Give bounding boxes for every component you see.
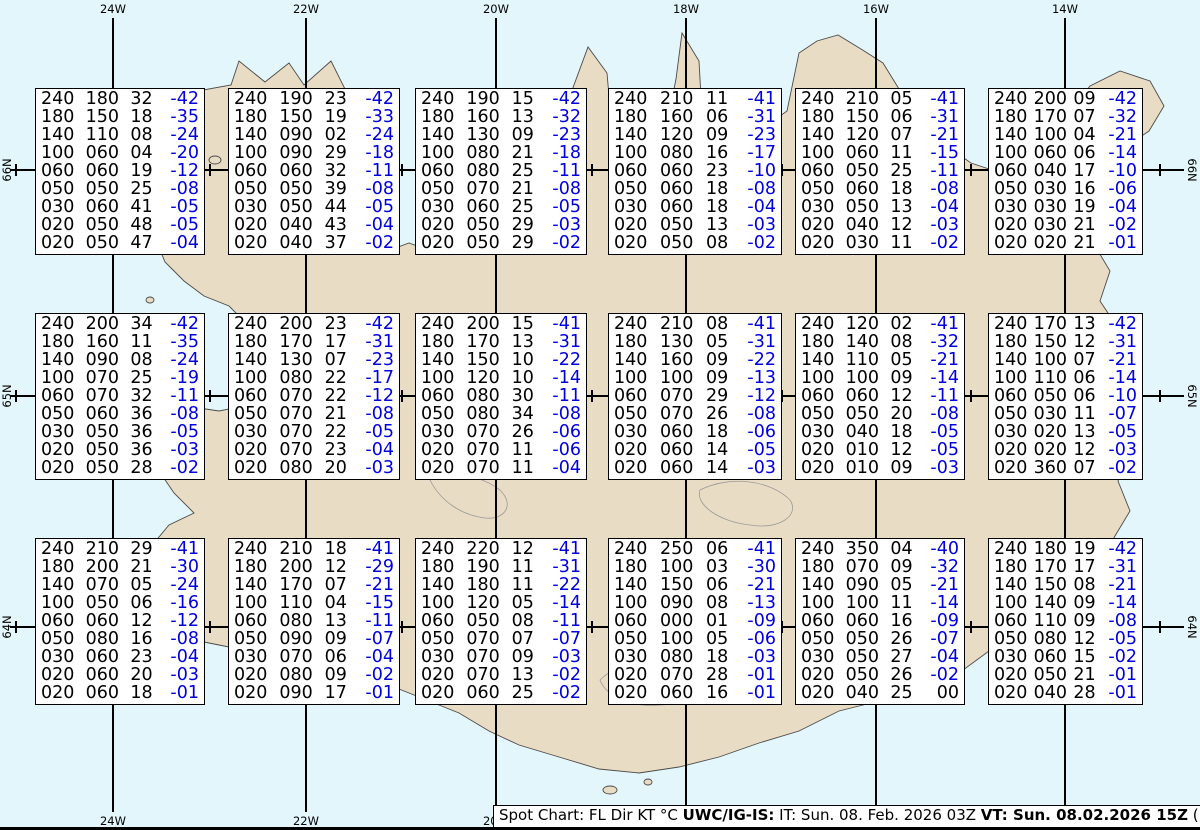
kt-value: 09 bbox=[325, 630, 351, 648]
kt-value: 06 bbox=[325, 648, 351, 666]
fl-value: 020 bbox=[234, 441, 270, 459]
temp-value: -11 bbox=[547, 612, 581, 630]
fl-value: 020 bbox=[994, 459, 1030, 477]
dir-value: 070 bbox=[86, 387, 122, 405]
spot-box-r3c6: 24018019-4218017017-3114015008-211001400… bbox=[988, 538, 1143, 705]
dir-value: 160 bbox=[660, 108, 696, 126]
fl-value: 030 bbox=[994, 198, 1030, 216]
kt-value: 04 bbox=[130, 144, 156, 162]
dir-value: 160 bbox=[660, 351, 696, 369]
kt-value: 07 bbox=[512, 630, 538, 648]
kt-value: 29 bbox=[706, 387, 732, 405]
temp-value: -05 bbox=[547, 198, 581, 216]
temp-value: -31 bbox=[1103, 333, 1137, 351]
fl-value: 240 bbox=[421, 90, 457, 108]
fl-value: 050 bbox=[421, 180, 457, 198]
spot-row: 06007022-12 bbox=[234, 387, 394, 405]
dir-value: 080 bbox=[1034, 630, 1070, 648]
temp-value: -42 bbox=[1103, 90, 1137, 108]
kt-value: 11 bbox=[890, 144, 916, 162]
temp-value: -24 bbox=[165, 576, 199, 594]
dir-value: 080 bbox=[660, 144, 696, 162]
spot-row: 05007007-07 bbox=[421, 630, 581, 648]
fl-value: 240 bbox=[41, 315, 77, 333]
fl-value: 240 bbox=[801, 90, 837, 108]
temp-value: -24 bbox=[165, 126, 199, 144]
kt-value: 16 bbox=[1073, 180, 1099, 198]
temp-value: -18 bbox=[360, 144, 394, 162]
kt-value: 11 bbox=[512, 441, 538, 459]
lon-label-top-24w: 24W bbox=[100, 2, 126, 16]
kt-value: 12 bbox=[1073, 630, 1099, 648]
spot-row: 14012007-21 bbox=[801, 126, 959, 144]
spot-row: 10008021-18 bbox=[421, 144, 581, 162]
fl-value: 100 bbox=[614, 369, 650, 387]
temp-value: -05 bbox=[925, 423, 959, 441]
spot-row: 14012009-23 bbox=[614, 126, 776, 144]
fl-value: 140 bbox=[801, 126, 837, 144]
temp-value: -03 bbox=[1103, 441, 1137, 459]
kt-value: 05 bbox=[890, 576, 916, 594]
kt-value: 08 bbox=[1073, 576, 1099, 594]
spot-row: 10010009-13 bbox=[614, 369, 776, 387]
kt-value: 20 bbox=[890, 405, 916, 423]
kt-value: 09 bbox=[1073, 90, 1099, 108]
dir-value: 030 bbox=[1034, 405, 1070, 423]
temp-value: -08 bbox=[742, 405, 776, 423]
spot-row: 24021011-41 bbox=[614, 90, 776, 108]
temp-value: -14 bbox=[925, 594, 959, 612]
dir-value: 210 bbox=[660, 315, 696, 333]
spot-row: 05008016-08 bbox=[41, 630, 199, 648]
fl-value: 030 bbox=[234, 648, 270, 666]
dir-value: 050 bbox=[86, 459, 122, 477]
spot-row: 06011009-08 bbox=[994, 612, 1137, 630]
dir-value: 200 bbox=[86, 558, 122, 576]
temp-value: -08 bbox=[165, 630, 199, 648]
kt-value: 09 bbox=[325, 666, 351, 684]
fl-value: 100 bbox=[801, 594, 837, 612]
spot-row: 05009009-07 bbox=[234, 630, 394, 648]
temp-value: -06 bbox=[1103, 180, 1137, 198]
kt-value: 13 bbox=[325, 612, 351, 630]
kt-value: 18 bbox=[890, 180, 916, 198]
spot-row: 02008009-02 bbox=[234, 666, 394, 684]
temp-value: -06 bbox=[547, 441, 581, 459]
temp-value: -21 bbox=[925, 126, 959, 144]
dir-value: 080 bbox=[279, 666, 315, 684]
spot-row: 05003016-06 bbox=[994, 180, 1137, 198]
dir-value: 060 bbox=[846, 144, 882, 162]
fl-value: 240 bbox=[41, 540, 77, 558]
fl-value: 020 bbox=[234, 459, 270, 477]
kt-value: 12 bbox=[890, 216, 916, 234]
spot-row: 18007009-32 bbox=[801, 558, 959, 576]
temp-value: -01 bbox=[1103, 234, 1137, 252]
kt-value: 04 bbox=[325, 594, 351, 612]
spot-box-r2c4: 24021008-4118013005-3114016009-221001000… bbox=[608, 313, 782, 480]
dir-value: 150 bbox=[1034, 576, 1070, 594]
dir-value: 030 bbox=[1034, 198, 1070, 216]
kt-value: 12 bbox=[890, 387, 916, 405]
kt-value: 21 bbox=[512, 180, 538, 198]
fl-value: 020 bbox=[801, 234, 837, 252]
dir-value: 090 bbox=[86, 351, 122, 369]
temp-value: -42 bbox=[547, 90, 581, 108]
spot-row: 02007023-04 bbox=[234, 441, 394, 459]
dir-value: 100 bbox=[846, 369, 882, 387]
fl-value: 050 bbox=[614, 630, 650, 648]
fl-value: 140 bbox=[614, 576, 650, 594]
kt-value: 23 bbox=[325, 90, 351, 108]
spot-row: 02001009-03 bbox=[801, 459, 959, 477]
dir-value: 060 bbox=[846, 612, 882, 630]
dir-value: 090 bbox=[279, 126, 315, 144]
temp-value: -05 bbox=[360, 198, 394, 216]
fl-value: 050 bbox=[421, 630, 457, 648]
spot-row: 06006012-11 bbox=[801, 387, 959, 405]
spot-row: 24021029-41 bbox=[41, 540, 199, 558]
spot-row: 10006004-20 bbox=[41, 144, 199, 162]
temp-value: -13 bbox=[742, 369, 776, 387]
fl-value: 240 bbox=[614, 90, 650, 108]
kt-value: 21 bbox=[325, 405, 351, 423]
fl-value: 140 bbox=[994, 126, 1030, 144]
temp-value: -08 bbox=[742, 180, 776, 198]
temp-value: -22 bbox=[547, 576, 581, 594]
temp-value: -32 bbox=[547, 108, 581, 126]
spot-row: 18014008-32 bbox=[801, 333, 959, 351]
temp-value: -42 bbox=[360, 90, 394, 108]
spot-row: 24022012-41 bbox=[421, 540, 581, 558]
dir-value: 360 bbox=[1034, 459, 1070, 477]
lon-label-top-22w: 22W bbox=[293, 2, 319, 16]
temp-value: -12 bbox=[165, 162, 199, 180]
temp-value: -10 bbox=[742, 162, 776, 180]
temp-value: -14 bbox=[547, 369, 581, 387]
temp-value: -17 bbox=[360, 369, 394, 387]
kt-value: 23 bbox=[706, 162, 732, 180]
temp-value: -03 bbox=[742, 459, 776, 477]
fl-value: 060 bbox=[234, 387, 270, 405]
kt-value: 09 bbox=[706, 126, 732, 144]
kt-value: 12 bbox=[890, 441, 916, 459]
dir-value: 120 bbox=[846, 126, 882, 144]
kt-value: 10 bbox=[512, 351, 538, 369]
fl-value: 180 bbox=[41, 333, 77, 351]
footer-title: Spot Chart: FL Dir KT °C bbox=[499, 806, 683, 824]
fl-value: 140 bbox=[421, 351, 457, 369]
dir-value: 080 bbox=[466, 405, 502, 423]
fl-value: 050 bbox=[614, 180, 650, 198]
dir-value: 050 bbox=[846, 630, 882, 648]
kt-value: 03 bbox=[706, 558, 732, 576]
fl-value: 020 bbox=[421, 216, 457, 234]
spot-row: 02006016-01 bbox=[614, 684, 776, 702]
temp-value: -32 bbox=[1103, 108, 1137, 126]
spot-row: 06007029-12 bbox=[614, 387, 776, 405]
spot-row: 06005006-10 bbox=[994, 387, 1137, 405]
spot-row: 06006032-11 bbox=[234, 162, 394, 180]
temp-value: -23 bbox=[360, 351, 394, 369]
grid-cross bbox=[204, 164, 216, 176]
kt-value: 19 bbox=[1073, 540, 1099, 558]
dir-value: 090 bbox=[660, 594, 696, 612]
temp-value: -03 bbox=[547, 216, 581, 234]
spot-row: 10014009-14 bbox=[994, 594, 1137, 612]
fl-value: 050 bbox=[234, 630, 270, 648]
temp-value: -08 bbox=[360, 405, 394, 423]
temp-value: -02 bbox=[925, 666, 959, 684]
fl-value: 060 bbox=[41, 162, 77, 180]
temp-value: -24 bbox=[165, 351, 199, 369]
dir-value: 020 bbox=[1034, 234, 1070, 252]
spot-row: 03007006-04 bbox=[234, 648, 394, 666]
fl-value: 020 bbox=[234, 216, 270, 234]
lat-label-left-64n: 64N bbox=[0, 615, 14, 638]
lat-label-right-64n: 64N bbox=[1185, 615, 1199, 638]
fl-value: 100 bbox=[994, 144, 1030, 162]
kt-value: 12 bbox=[130, 612, 156, 630]
grid-cross bbox=[586, 390, 598, 402]
fl-value: 060 bbox=[801, 387, 837, 405]
fl-value: 030 bbox=[801, 648, 837, 666]
fl-value: 020 bbox=[614, 216, 650, 234]
fl-value: 020 bbox=[801, 666, 837, 684]
temp-value: -01 bbox=[1103, 666, 1137, 684]
fl-value: 030 bbox=[41, 648, 77, 666]
dir-value: 080 bbox=[660, 648, 696, 666]
temp-value: -21 bbox=[742, 576, 776, 594]
dir-value: 060 bbox=[86, 612, 122, 630]
spot-row: 10008016-17 bbox=[614, 144, 776, 162]
spot-row: 24021008-41 bbox=[614, 315, 776, 333]
lon-label-bottom-24w: 24W bbox=[100, 814, 126, 828]
dir-value: 040 bbox=[1034, 162, 1070, 180]
temp-value: -22 bbox=[742, 351, 776, 369]
dir-value: 100 bbox=[660, 369, 696, 387]
kt-value: 22 bbox=[325, 423, 351, 441]
fl-value: 020 bbox=[614, 234, 650, 252]
dir-value: 100 bbox=[1034, 351, 1070, 369]
spot-row: 24017013-42 bbox=[994, 315, 1137, 333]
spot-box-r2c3: 24020015-4118017013-3114015010-221001201… bbox=[415, 313, 587, 480]
temp-value: -11 bbox=[360, 612, 394, 630]
kt-value: 18 bbox=[706, 198, 732, 216]
dir-value: 060 bbox=[279, 162, 315, 180]
grid-cross bbox=[965, 164, 977, 176]
dir-value: 040 bbox=[279, 234, 315, 252]
kt-value: 09 bbox=[890, 558, 916, 576]
temp-value: -04 bbox=[925, 198, 959, 216]
fl-value: 020 bbox=[421, 441, 457, 459]
temp-value: -21 bbox=[360, 576, 394, 594]
dir-value: 200 bbox=[1034, 90, 1070, 108]
dir-value: 070 bbox=[660, 387, 696, 405]
fl-value: 020 bbox=[41, 666, 77, 684]
spot-row: 02003011-02 bbox=[801, 234, 959, 252]
dir-value: 070 bbox=[660, 666, 696, 684]
spot-box-r1c3: 24019015-4218016013-3214013009-231000802… bbox=[415, 88, 587, 255]
spot-row: 10012005-14 bbox=[421, 594, 581, 612]
spot-row: 05006036-08 bbox=[41, 405, 199, 423]
fl-value: 060 bbox=[801, 612, 837, 630]
temp-value: -21 bbox=[1103, 351, 1137, 369]
temp-value: -41 bbox=[925, 90, 959, 108]
fl-value: 020 bbox=[614, 666, 650, 684]
temp-value: -08 bbox=[360, 180, 394, 198]
kt-value: 22 bbox=[325, 369, 351, 387]
kt-value: 08 bbox=[706, 594, 732, 612]
kt-value: 06 bbox=[706, 108, 732, 126]
spot-row: 18019011-31 bbox=[421, 558, 581, 576]
temp-value: -08 bbox=[1103, 612, 1137, 630]
spot-row: 02005029-02 bbox=[421, 234, 581, 252]
fl-value: 100 bbox=[421, 594, 457, 612]
spot-row: 24020023-42 bbox=[234, 315, 394, 333]
kt-value: 18 bbox=[325, 540, 351, 558]
dir-value: 070 bbox=[279, 441, 315, 459]
spot-row: 10012010-14 bbox=[421, 369, 581, 387]
temp-value: -41 bbox=[547, 315, 581, 333]
temp-value: -02 bbox=[1103, 648, 1137, 666]
grid-cross bbox=[204, 621, 216, 633]
dir-value: 210 bbox=[279, 540, 315, 558]
spot-row: 05005039-08 bbox=[234, 180, 394, 198]
temp-value: -08 bbox=[165, 180, 199, 198]
kt-value: 21 bbox=[1073, 234, 1099, 252]
spot-row: 02002012-03 bbox=[994, 441, 1137, 459]
kt-value: 23 bbox=[130, 648, 156, 666]
kt-value: 11 bbox=[512, 558, 538, 576]
kt-value: 36 bbox=[130, 441, 156, 459]
temp-value: -12 bbox=[742, 387, 776, 405]
spot-row: 10011004-15 bbox=[234, 594, 394, 612]
fl-value: 180 bbox=[614, 558, 650, 576]
fl-value: 180 bbox=[801, 558, 837, 576]
spot-box-r3c3: 24022012-4118019011-3114018011-221001200… bbox=[415, 538, 587, 705]
kt-value: 05 bbox=[512, 594, 538, 612]
kt-value: 13 bbox=[890, 198, 916, 216]
dir-value: 070 bbox=[466, 180, 502, 198]
dir-value: 030 bbox=[1034, 216, 1070, 234]
dir-value: 090 bbox=[846, 576, 882, 594]
spot-row: 03006015-02 bbox=[994, 648, 1137, 666]
dir-value: 050 bbox=[466, 612, 502, 630]
kt-value: 34 bbox=[130, 315, 156, 333]
spot-row: 14015010-22 bbox=[421, 351, 581, 369]
spot-row: 05005025-08 bbox=[41, 180, 199, 198]
dir-value: 060 bbox=[660, 162, 696, 180]
fl-value: 180 bbox=[994, 108, 1030, 126]
spot-row: 02008020-03 bbox=[234, 459, 394, 477]
kt-value: 11 bbox=[890, 594, 916, 612]
fl-value: 140 bbox=[41, 576, 77, 594]
spot-box-r3c1: 24021029-4118020021-3014007005-241000500… bbox=[35, 538, 205, 705]
spot-row: 10011006-14 bbox=[994, 369, 1137, 387]
fl-value: 140 bbox=[41, 351, 77, 369]
temp-value: -32 bbox=[925, 333, 959, 351]
fl-value: 020 bbox=[41, 216, 77, 234]
kt-value: 09 bbox=[512, 126, 538, 144]
kt-value: 05 bbox=[130, 576, 156, 594]
kt-value: 12 bbox=[512, 540, 538, 558]
kt-value: 30 bbox=[512, 387, 538, 405]
spot-row: 02007013-02 bbox=[421, 666, 581, 684]
kt-value: 29 bbox=[512, 216, 538, 234]
dir-value: 070 bbox=[279, 648, 315, 666]
footer-product: UWC/IG-IS: bbox=[683, 806, 775, 824]
spot-row: 24025006-41 bbox=[614, 540, 776, 558]
dir-value: 060 bbox=[466, 684, 502, 702]
temp-value: -05 bbox=[165, 216, 199, 234]
grid-cross bbox=[1154, 390, 1166, 402]
fl-value: 020 bbox=[801, 441, 837, 459]
kt-value: 13 bbox=[512, 108, 538, 126]
spot-row: 02005036-03 bbox=[41, 441, 199, 459]
kt-value: 12 bbox=[1073, 441, 1099, 459]
kt-value: 27 bbox=[890, 648, 916, 666]
fl-value: 020 bbox=[801, 684, 837, 702]
spot-row: 03005027-04 bbox=[801, 648, 959, 666]
fl-value: 180 bbox=[41, 108, 77, 126]
fl-value: 100 bbox=[41, 369, 77, 387]
fl-value: 050 bbox=[801, 180, 837, 198]
fl-value: 020 bbox=[421, 234, 457, 252]
temp-value: -11 bbox=[925, 387, 959, 405]
dir-value: 050 bbox=[86, 594, 122, 612]
kt-value: 14 bbox=[706, 459, 732, 477]
temp-value: -19 bbox=[165, 369, 199, 387]
kt-value: 06 bbox=[890, 108, 916, 126]
kt-value: 15 bbox=[512, 90, 538, 108]
kt-value: 09 bbox=[890, 369, 916, 387]
temp-value: -41 bbox=[360, 540, 394, 558]
kt-value: 09 bbox=[1073, 612, 1099, 630]
spot-box-r2c5: 24012002-4118014008-3214011005-211001000… bbox=[795, 313, 965, 480]
kt-value: 32 bbox=[325, 162, 351, 180]
kt-value: 47 bbox=[130, 234, 156, 252]
kt-value: 15 bbox=[1073, 648, 1099, 666]
dir-value: 150 bbox=[86, 108, 122, 126]
fl-value: 060 bbox=[994, 387, 1030, 405]
fl-value: 100 bbox=[801, 369, 837, 387]
fl-value: 020 bbox=[994, 684, 1030, 702]
temp-value: -02 bbox=[547, 666, 581, 684]
spot-row: 06004017-10 bbox=[994, 162, 1137, 180]
fl-value: 240 bbox=[994, 90, 1030, 108]
temp-value: -18 bbox=[547, 144, 581, 162]
spot-row: 05003011-07 bbox=[994, 405, 1137, 423]
dir-value: 060 bbox=[660, 684, 696, 702]
dir-value: 070 bbox=[279, 423, 315, 441]
fl-value: 060 bbox=[994, 162, 1030, 180]
fl-value: 100 bbox=[41, 594, 77, 612]
temp-value: -04 bbox=[165, 648, 199, 666]
fl-value: 020 bbox=[614, 441, 650, 459]
spot-row: 24035004-40 bbox=[801, 540, 959, 558]
fl-value: 020 bbox=[614, 684, 650, 702]
temp-value: -02 bbox=[547, 234, 581, 252]
lon-label-top-20w: 20W bbox=[483, 2, 509, 16]
dir-value: 070 bbox=[466, 441, 502, 459]
kt-value: 02 bbox=[325, 126, 351, 144]
spot-row: 02006014-03 bbox=[614, 459, 776, 477]
dir-value: 080 bbox=[86, 630, 122, 648]
dir-value: 180 bbox=[86, 90, 122, 108]
temp-value: -14 bbox=[925, 369, 959, 387]
fl-value: 060 bbox=[614, 387, 650, 405]
